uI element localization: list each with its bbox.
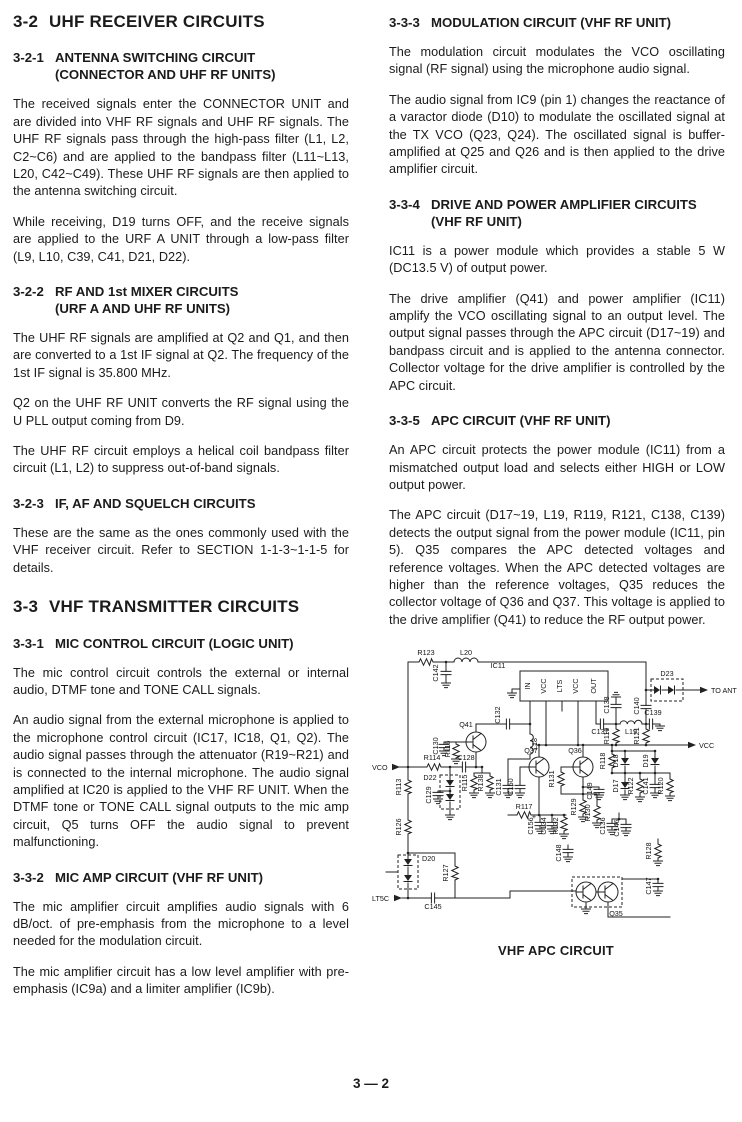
section-heading-line2: (URF A AND UHF RF UNITS) <box>55 300 238 317</box>
paragraph: An APC circuit protects the power module… <box>389 442 725 494</box>
left-column: 3-2UHF RECEIVER CIRCUITS3-2-1ANTENNA SWI… <box>13 10 349 999</box>
component-label-r120: R120 <box>656 778 665 795</box>
section-heading-line1: MIC AMP CIRCUIT (VHF RF UNIT) <box>55 869 263 886</box>
component-label-r122: R122 <box>626 778 635 795</box>
chapter-heading-number: 3-3 <box>13 597 49 617</box>
component-label-c132: C132 <box>493 707 502 724</box>
section-heading-title: MODULATION CIRCUIT (VHF RF UNIT) <box>431 14 671 31</box>
component-label-r114: R114 <box>424 753 441 762</box>
component-label-r138: R138 <box>476 775 485 792</box>
component-label-in: IN <box>523 683 532 690</box>
chapter-heading: 3-3VHF TRANSMITTER CIRCUITS <box>13 597 349 617</box>
component-label-c137: C137 <box>591 727 608 736</box>
component-label-d18: D18 <box>611 755 620 768</box>
section-heading: 3-2-3IF, AF AND SQUELCH CIRCUITS <box>13 495 349 512</box>
chapter-heading-title: UHF RECEIVER CIRCUITS <box>49 12 265 32</box>
paragraph: The mic control circuit controls the ext… <box>13 665 349 700</box>
section-heading-line1: APC CIRCUIT (VHF RF UNIT) <box>431 412 610 429</box>
component-label-+: + <box>532 812 536 821</box>
section-heading-title: MIC AMP CIRCUIT (VHF RF UNIT) <box>55 869 263 886</box>
component-label-c134: C134 <box>539 818 548 835</box>
component-label-r126: R126 <box>394 819 403 836</box>
page-number: 3 — 2 <box>0 1076 742 1091</box>
component-label-vco: VCO <box>372 763 388 772</box>
component-label-c129: C129 <box>424 787 433 804</box>
component-label-q36: Q36 <box>568 746 582 755</box>
section-heading-number: 3-3-5 <box>389 412 431 429</box>
paragraph: IC11 is a power module which provides a … <box>389 243 725 278</box>
section-heading-line1: MIC CONTROL CIRCUIT (LOGIC UNIT) <box>55 635 294 652</box>
transistor-q35b <box>598 882 618 902</box>
component-label-vcc: VCC <box>539 679 548 694</box>
component-label-c149: C149 <box>585 783 594 800</box>
transistor-q35a <box>576 882 596 902</box>
component-label-d17: D17 <box>611 780 620 793</box>
component-label-c146: C146 <box>612 820 621 837</box>
component-label-r130: R130 <box>583 805 592 822</box>
section-heading-line2: (CONNECTOR AND UHF RF UNITS) <box>55 66 276 83</box>
component-label-c145: C145 <box>424 902 441 911</box>
vhf-apc-circuit-figure: R123L20C142IC11INVCCLTSVCCOUTQ41C132L18C… <box>370 639 742 958</box>
section-heading: 3-3-4DRIVE AND POWER AMPLIFIER CIRCUITS(… <box>389 196 725 230</box>
paragraph: The received signals enter the CONNECTOR… <box>13 96 349 200</box>
component-label-d23: D23 <box>660 669 673 678</box>
paragraph: The APC circuit (D17~19, L19, R119, R121… <box>389 507 725 629</box>
paragraph: Q2 on the UHF RF UNIT converts the RF si… <box>13 395 349 430</box>
component-label-q41: Q41 <box>459 720 473 729</box>
section-heading-line2: (VHF RF UNIT) <box>431 213 697 230</box>
component-label-r115: R115 <box>460 775 469 792</box>
chapter-heading: 3-2UHF RECEIVER CIRCUITS <box>13 12 349 32</box>
section-heading-line1: IF, AF AND SQUELCH CIRCUITS <box>55 495 256 512</box>
component-label-ic11: IC11 <box>491 661 506 670</box>
page: 3-2UHF RECEIVER CIRCUITS3-2-1ANTENNA SWI… <box>0 0 742 999</box>
component-label-l20: L20 <box>460 648 472 657</box>
section-heading-title: DRIVE AND POWER AMPLIFIER CIRCUITS(VHF R… <box>431 196 697 230</box>
component-label-vcc: VCC <box>699 741 714 750</box>
section-heading-number: 3-3-2 <box>13 869 55 886</box>
section-heading-title: RF AND 1st MIXER CIRCUITS(URF A AND UHF … <box>55 283 238 317</box>
section-heading: 3-3-3MODULATION CIRCUIT (VHF RF UNIT) <box>389 14 725 31</box>
lt5c-arrow-icon <box>394 895 402 901</box>
component-label-r116: R116 <box>443 741 452 758</box>
component-label-r113: R113 <box>394 779 403 796</box>
component-label-q37: Q37 <box>524 746 538 755</box>
component-label-r117: R117 <box>516 802 533 811</box>
component-label-r128: R128 <box>644 843 653 860</box>
section-heading-line1: ANTENNA SWITCHING CIRCUIT <box>55 49 276 66</box>
section-heading-number: 3-2-1 <box>13 49 55 83</box>
section-heading-line1: RF AND 1st MIXER CIRCUITS <box>55 283 238 300</box>
component-label-to-ant: TO ANT <box>711 686 737 695</box>
transistor-q41 <box>466 732 486 752</box>
section-heading-line1: MODULATION CIRCUIT (VHF RF UNIT) <box>431 14 671 31</box>
section-heading-number: 3-2-2 <box>13 283 55 317</box>
component-label-lt5c: LT5C <box>372 894 389 903</box>
chapter-heading-title: VHF TRANSMITTER CIRCUITS <box>49 597 299 617</box>
section-heading: 3-3-1MIC CONTROL CIRCUIT (LOGIC UNIT) <box>13 635 349 652</box>
component-label-l19: L19 <box>625 727 637 736</box>
component-label-r131: R131 <box>547 771 556 788</box>
component-label-c150: C150 <box>506 779 515 796</box>
component-label-c148: C148 <box>554 845 563 862</box>
vco-arrow-icon <box>392 764 400 770</box>
section-heading-number: 3-3-3 <box>389 14 431 31</box>
section-heading-title: IF, AF AND SQUELCH CIRCUITS <box>55 495 256 512</box>
paragraph: The audio signal from IC9 (pin 1) change… <box>389 92 725 179</box>
component-label-c131: C131 <box>494 779 503 796</box>
vcc-arrow-icon <box>688 742 696 748</box>
vhf-apc-circuit-schematic: R123L20C142IC11INVCCLTSVCCOUTQ41C132L18C… <box>370 639 742 939</box>
right-column-sections: 3-3-3MODULATION CIRCUIT (VHF RF UNIT)The… <box>389 14 725 629</box>
component-label-r129: R129 <box>569 799 578 816</box>
component-label-d19: D19 <box>641 755 650 768</box>
component-label-out: OUT <box>589 678 598 694</box>
component-label-c141: C141 <box>641 778 650 795</box>
component-label-lts: LTS <box>555 680 564 693</box>
right-column: 3-3-3MODULATION CIRCUIT (VHF RF UNIT)The… <box>389 10 725 999</box>
section-heading: 3-3-2MIC AMP CIRCUIT (VHF RF UNIT) <box>13 869 349 886</box>
component-label-r123: R123 <box>417 648 434 657</box>
paragraph: The drive amplifier (Q41) and power ampl… <box>389 291 725 395</box>
component-label-r118: R118 <box>598 753 607 770</box>
section-heading: 3-2-1ANTENNA SWITCHING CIRCUIT(CONNECTOR… <box>13 49 349 83</box>
component-label-c139: C139 <box>644 708 661 717</box>
figure-caption: VHF APC CIRCUIT <box>370 943 742 958</box>
component-label-c147: C147 <box>644 878 653 895</box>
section-heading-title: APC CIRCUIT (VHF RF UNIT) <box>431 412 610 429</box>
component-label-c136: C136 <box>598 818 607 835</box>
section-heading: 3-3-5APC CIRCUIT (VHF RF UNIT) <box>389 412 725 429</box>
paragraph: While receiving, D19 turns OFF, and the … <box>13 214 349 266</box>
section-heading-title: ANTENNA SWITCHING CIRCUIT(CONNECTOR AND … <box>55 49 276 83</box>
component-label-c142: C142 <box>431 665 440 682</box>
paragraph: The UHF RF signals are amplified at Q2 a… <box>13 330 349 382</box>
component-label-c138: C138 <box>602 697 611 714</box>
component-label-r127: R127 <box>441 865 450 882</box>
section-heading: 3-2-2RF AND 1st MIXER CIRCUITS(URF A AND… <box>13 283 349 317</box>
section-heading-number: 3-2-3 <box>13 495 55 512</box>
section-heading-number: 3-3-4 <box>389 196 431 230</box>
paragraph: The UHF RF circuit employs a helical coi… <box>13 443 349 478</box>
component-label-r132: R132 <box>551 818 560 835</box>
paragraph: The mic amplifier circuit amplifies audi… <box>13 899 349 951</box>
section-heading-title: MIC CONTROL CIRCUIT (LOGIC UNIT) <box>55 635 294 652</box>
paragraph: These are the same as the ones commonly … <box>13 525 349 577</box>
paragraph: The mic amplifier circuit has a low leve… <box>13 964 349 999</box>
transistor-q36 <box>573 757 593 777</box>
section-heading-line1: DRIVE AND POWER AMPLIFIER CIRCUITS <box>431 196 697 213</box>
transistor-q37 <box>529 757 549 777</box>
section-heading-number: 3-3-1 <box>13 635 55 652</box>
chapter-heading-number: 3-2 <box>13 12 49 32</box>
paragraph: The modulation circuit modulates the VCO… <box>389 44 725 79</box>
component-label-d22: D22 <box>423 773 436 782</box>
paragraph: An audio signal from the external microp… <box>13 712 349 851</box>
component-label-d20: D20 <box>422 854 435 863</box>
component-label-c128: C128 <box>457 753 474 762</box>
junction-dots <box>407 661 660 900</box>
component-label-q35: Q35 <box>609 909 623 918</box>
component-label-vcc: VCC <box>571 679 580 694</box>
to-ant-arrow-icon <box>700 687 708 693</box>
component-label-c140: C140 <box>632 698 641 715</box>
